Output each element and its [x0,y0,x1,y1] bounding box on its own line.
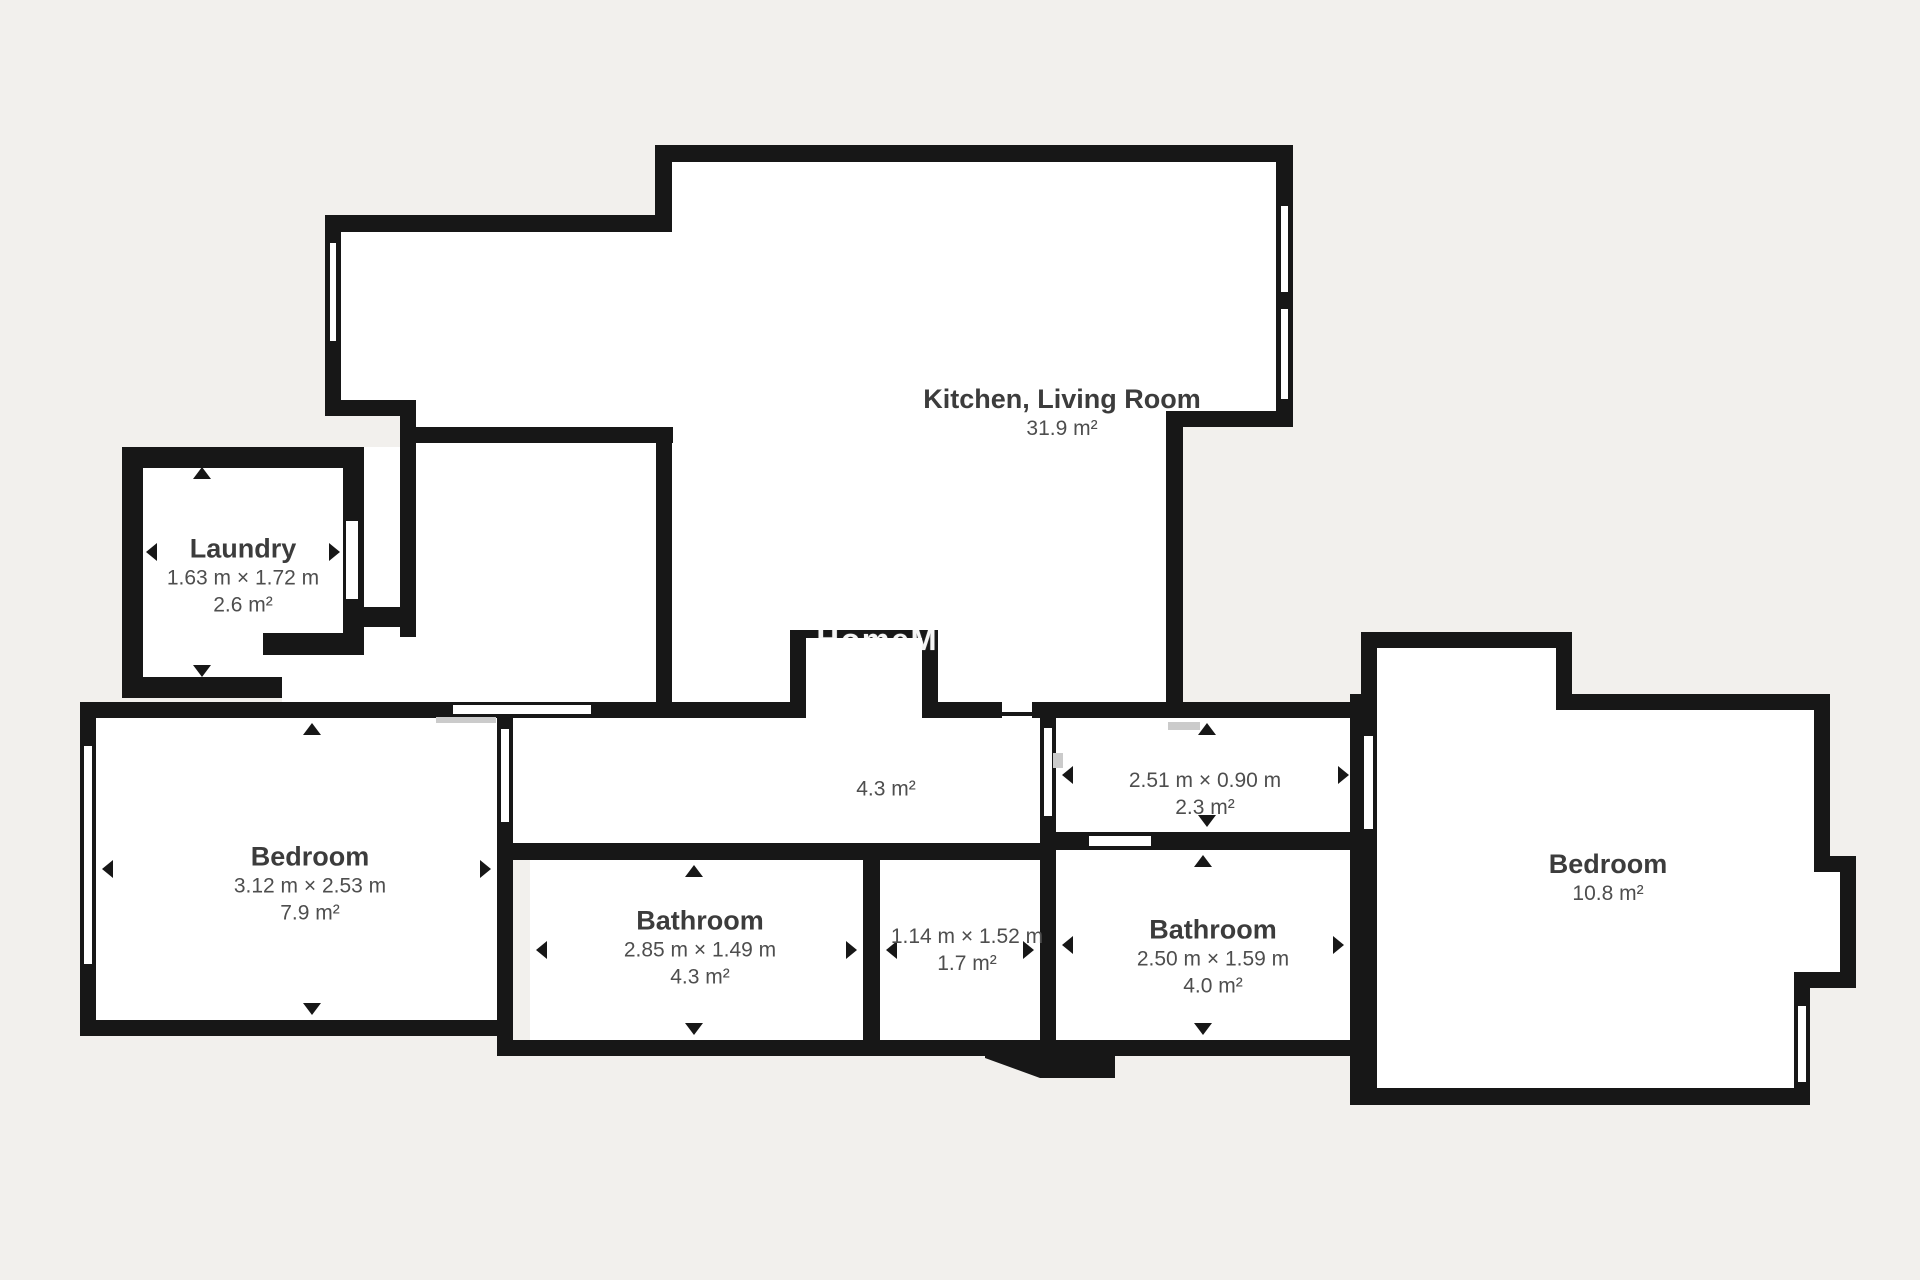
window-kitchen-right-1 [1280,205,1289,293]
passage-floor [400,443,656,702]
door-bedroom-right [1363,735,1374,830]
pass-opening [452,704,592,715]
wc-floor [880,860,1040,1040]
floorplan-page: { "page": { "background": "#f2f0ed", "wa… [0,0,1920,1280]
corridor-floor [1056,718,1355,832]
bedroom-left-floor [96,718,497,1020]
hall-floor [513,718,1056,843]
door-bathroom-right [1088,835,1152,847]
bathroom-right-floor [1056,850,1350,1040]
kitchen-floor [672,162,1276,702]
window-kitchen-right-2 [1280,308,1289,400]
window-kitchen-left [329,242,337,342]
window-bedroom-left [83,745,93,965]
bathroom-left-floor [530,860,863,1040]
door-bedroom-left [500,728,510,823]
bedroom-right-floor [1377,648,1840,1088]
door-laundry [345,520,359,600]
floorplan-drawing [0,0,1920,1280]
door-corridor [1043,727,1053,817]
window-bedroom-right [1797,1005,1807,1083]
